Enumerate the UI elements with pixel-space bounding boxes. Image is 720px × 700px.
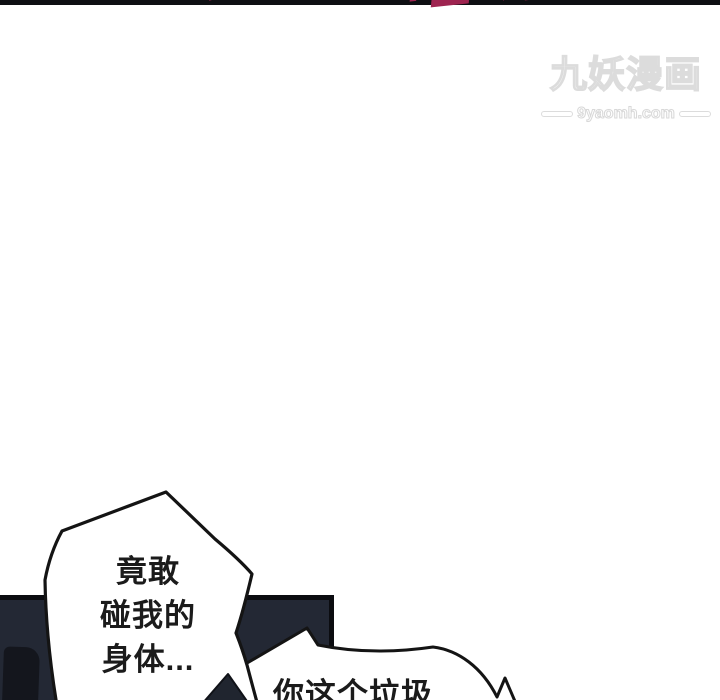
bubble2-dialog: 你这个垃圾 — [258, 677, 448, 700]
bubble1-line-1: 竟敢 — [58, 550, 238, 594]
comic-page: 哐啷 哐啷 九妖漫画 9yaomh.com 竟敢 碰我的 身体... 你这个垃圾 — [0, 0, 720, 700]
bubble1-line-2: 碰我的 — [58, 594, 238, 638]
bubble1-dialog: 竟敢 碰我的 身体... — [58, 550, 238, 682]
bubble1-line-3: 身体... — [58, 638, 238, 682]
